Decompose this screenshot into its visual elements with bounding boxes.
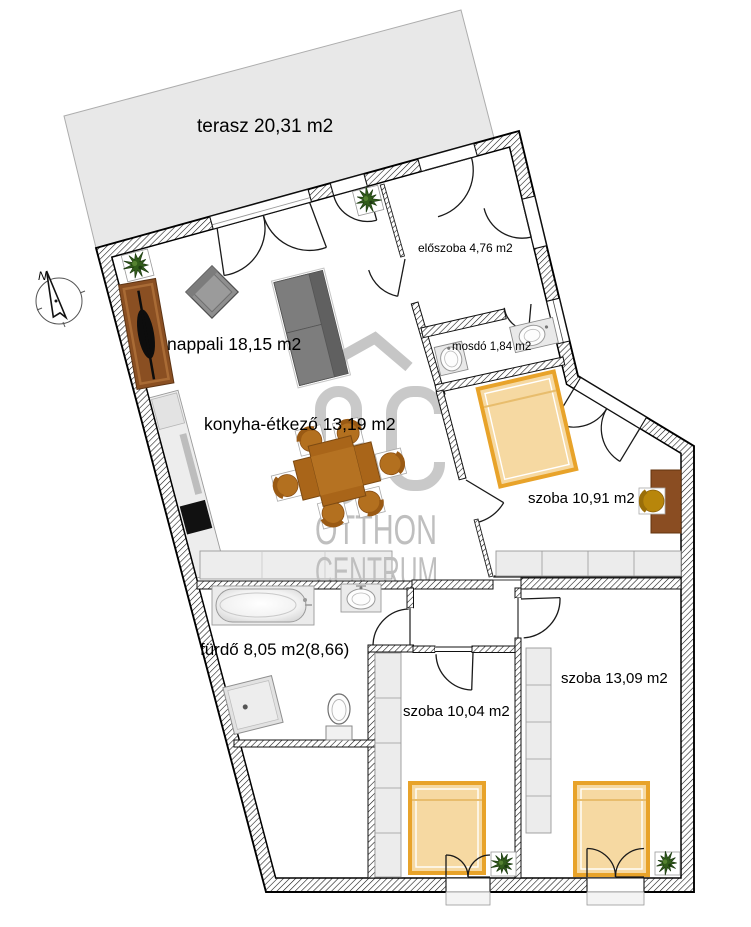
svg-text:terasz 20,31 m2: terasz 20,31 m2 (197, 116, 333, 137)
svg-text:fürdő 8,05 m2(8,66): fürdő 8,05 m2(8,66) (200, 640, 349, 659)
svg-text:szoba 10,04 m2: szoba 10,04 m2 (403, 703, 510, 720)
svg-text:N: N (38, 269, 47, 283)
svg-text:konyha-étkező 13,19 m2: konyha-étkező 13,19 m2 (204, 414, 396, 434)
svg-text:nappali 18,15 m2: nappali 18,15 m2 (167, 334, 301, 354)
svg-text:szoba 13,09 m2: szoba 13,09 m2 (561, 670, 668, 687)
svg-text:előszoba 4,76 m2: előszoba 4,76 m2 (418, 241, 513, 255)
svg-text:mosdó 1,84 m2: mosdó 1,84 m2 (452, 341, 531, 353)
svg-text:szoba 10,91 m2: szoba 10,91 m2 (528, 490, 635, 507)
